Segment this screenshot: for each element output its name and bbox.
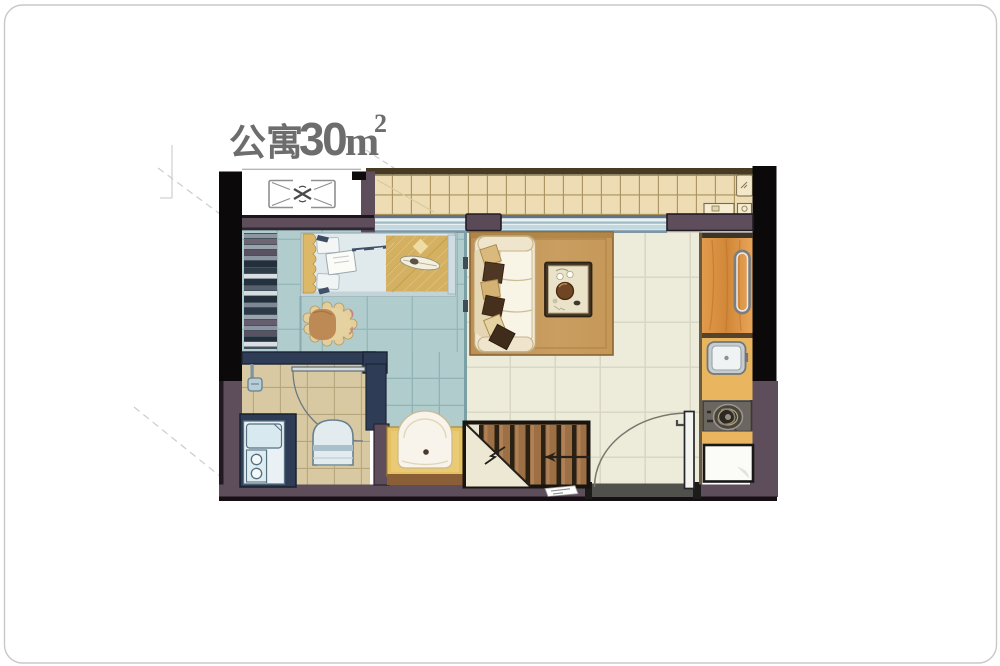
svg-text:公寓: 公寓 bbox=[229, 122, 303, 163]
svg-text:2: 2 bbox=[374, 109, 387, 138]
svg-text:30: 30 bbox=[299, 113, 346, 165]
